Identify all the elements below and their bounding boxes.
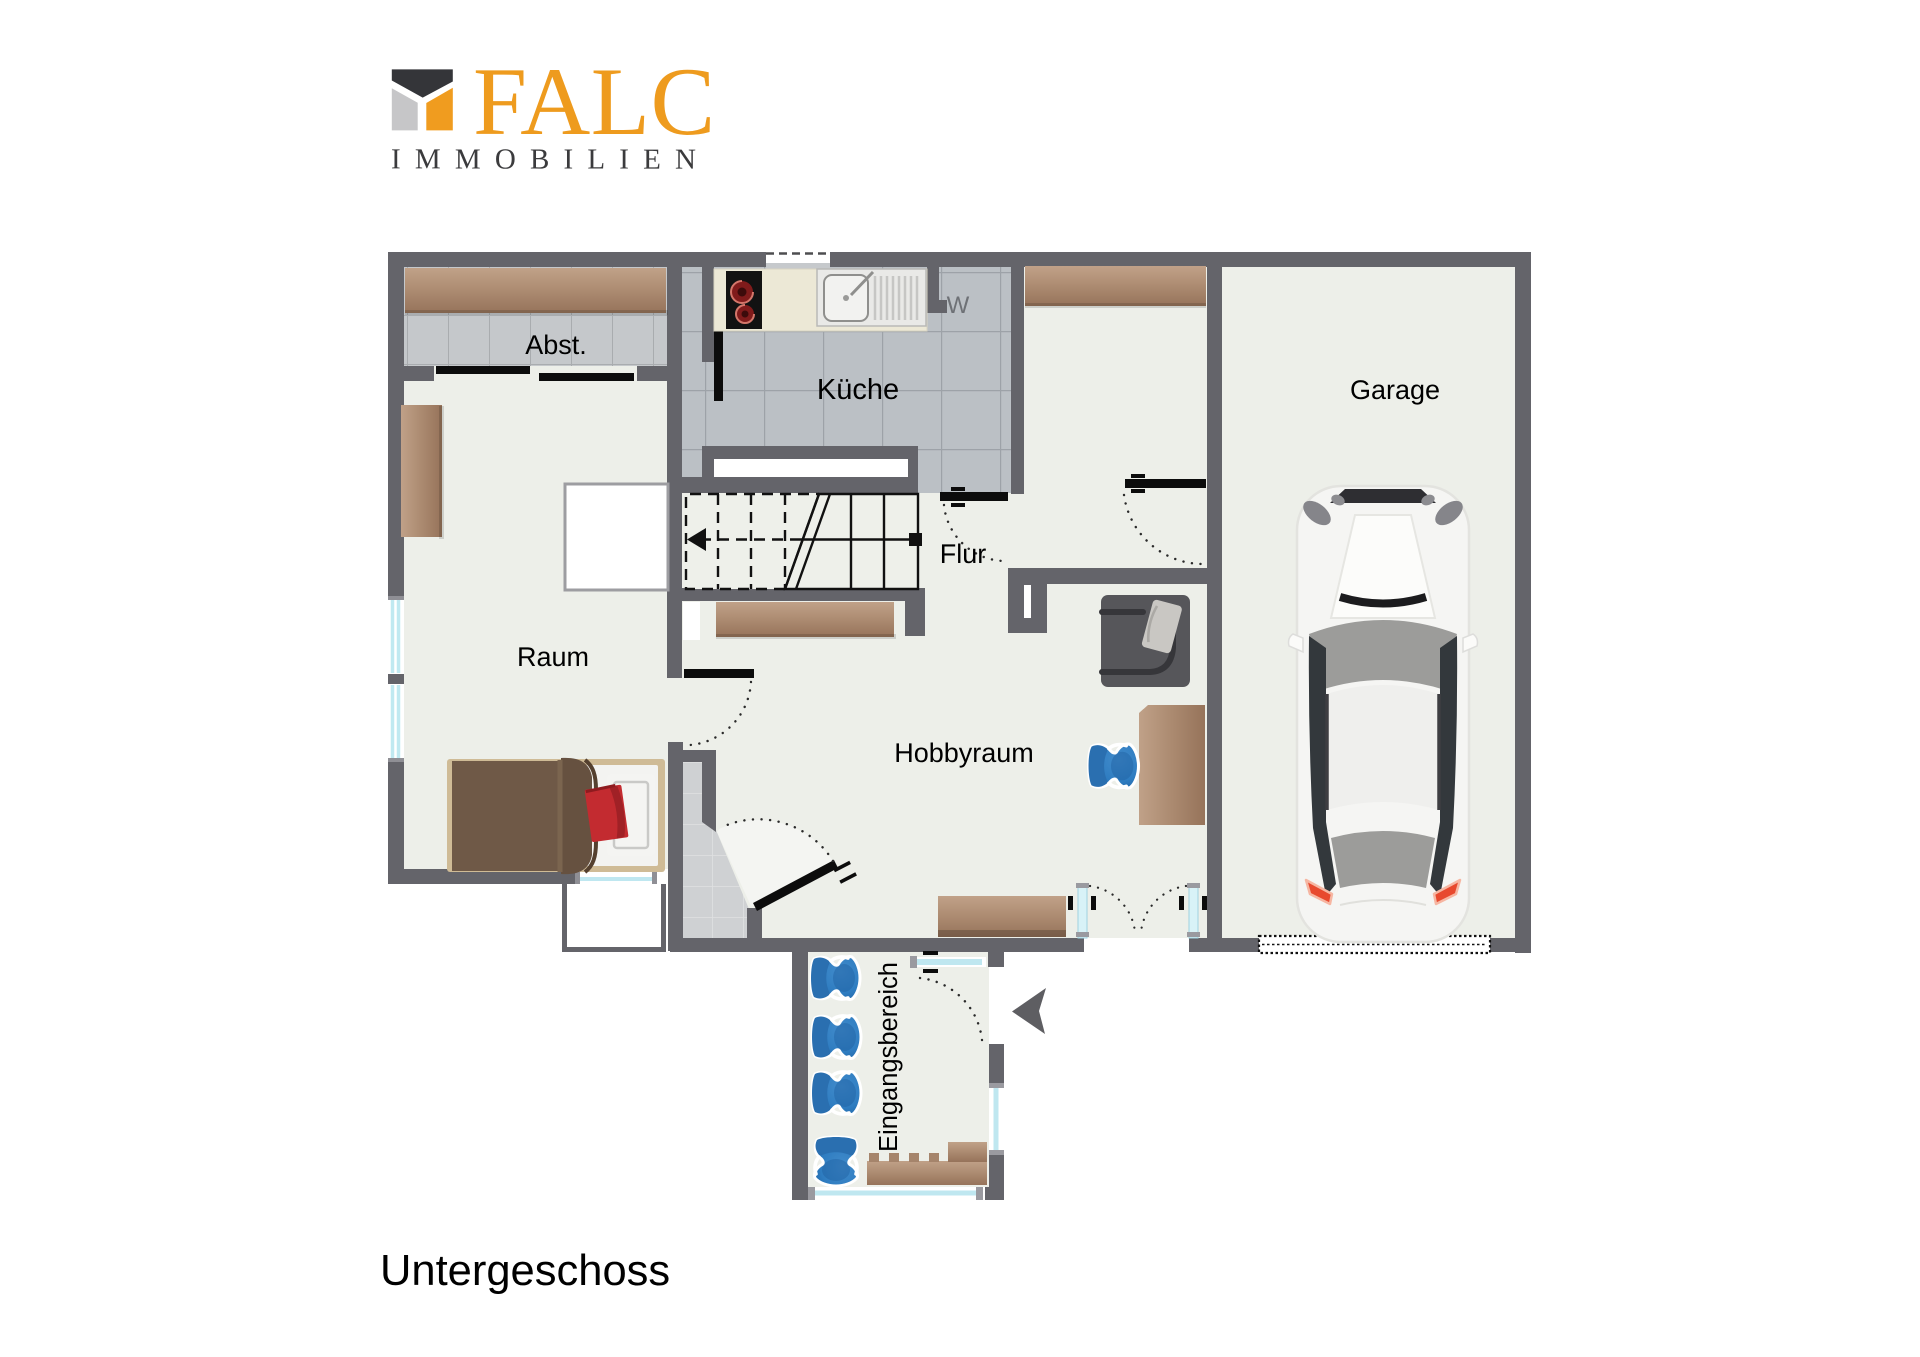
svg-text:Garage: Garage — [1350, 375, 1440, 405]
svg-text:Küche: Küche — [817, 374, 899, 406]
svg-text:FALC: FALC — [473, 48, 716, 155]
svg-text:Hobbyraum: Hobbyraum — [894, 738, 1034, 768]
svg-text:Flur: Flur — [940, 539, 987, 569]
svg-text:Eingangsbereich: Eingangsbereich — [875, 962, 903, 1152]
svg-text:Untergeschoss: Untergeschoss — [380, 1247, 670, 1295]
svg-text:Raum: Raum — [517, 642, 589, 672]
svg-text:Abst.: Abst. — [525, 330, 587, 360]
svg-text:IMMOBILIEN: IMMOBILIEN — [391, 143, 710, 175]
svg-text:W: W — [947, 292, 970, 319]
